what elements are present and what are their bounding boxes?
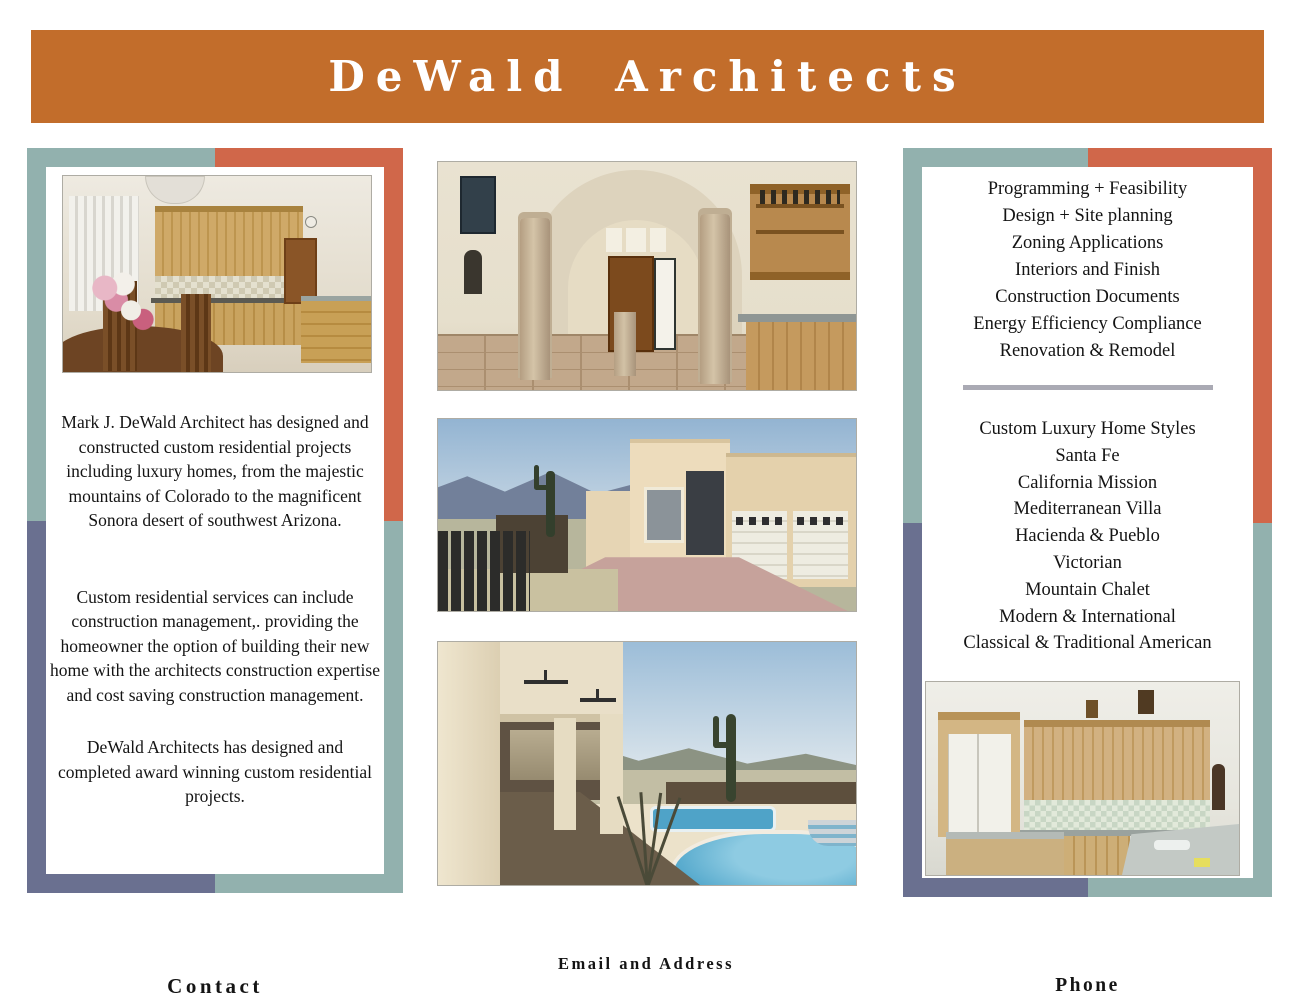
garage-door (793, 511, 848, 579)
style-item: Hacienda & Pueblo (922, 523, 1253, 550)
dining-chair (181, 294, 211, 373)
style-item: Mediterranean Villa (922, 496, 1253, 523)
column (700, 214, 730, 384)
decor-lantern (1086, 700, 1098, 718)
service-item: Design + Site planning (922, 203, 1253, 230)
service-item: Interiors and Finish (922, 257, 1253, 284)
title-banner: DeWald Architects (31, 30, 1264, 123)
frame-top-left (27, 148, 215, 167)
pool-steps (808, 820, 856, 846)
left-panel: Mark J. DeWald Architect has designed an… (27, 148, 403, 893)
flower-arrangement (115, 296, 155, 332)
style-item: Custom Luxury Home Styles (922, 416, 1253, 443)
wall-art (460, 176, 496, 234)
frame-left-bottom (27, 521, 46, 894)
service-item: Construction Documents (922, 284, 1253, 311)
corner-pillar (438, 642, 500, 885)
patio-column (600, 714, 623, 834)
photo-kitchen-oak (925, 681, 1240, 876)
pendant-lamp (145, 176, 205, 204)
email-heading: Email and Address (437, 951, 855, 976)
service-item: Zoning Applications (922, 230, 1253, 257)
frame-right-top (1253, 148, 1272, 523)
bottles (760, 190, 840, 204)
contact-heading: Contact (27, 972, 403, 1000)
frame-right-top (384, 148, 403, 521)
column (520, 218, 550, 380)
photo-foyer-arch (437, 161, 857, 391)
services-paragraph: Custom residential services can include … (49, 585, 381, 708)
frame-left-bottom (903, 523, 922, 898)
door-sidelight (654, 258, 676, 350)
phone-block: Phone 928-726-0686 (903, 916, 1272, 1000)
frame-right-bottom (1253, 523, 1272, 898)
entry-glass (686, 471, 724, 555)
divider-line (963, 385, 1213, 390)
sculpture (1212, 764, 1225, 810)
frame-top-right (215, 148, 403, 167)
home-styles-list: Custom Luxury Home Styles Santa Fe Calif… (922, 416, 1253, 657)
email-address-block: Email and Address DeWaldArchitects@roadr… (437, 901, 855, 1000)
upper-cabinets (1024, 720, 1210, 807)
service-item: Programming + Feasibility (922, 176, 1253, 203)
awards-paragraph: DeWald Architects has designed and compl… (49, 735, 381, 809)
services-list: Programming + Feasibility Design + Site … (922, 176, 1253, 365)
phone-heading: Phone (903, 972, 1272, 1000)
style-item: Santa Fe (922, 443, 1253, 470)
frame-bottom-right (1088, 878, 1273, 897)
ceiling-fan (580, 698, 616, 702)
about-paragraph: Mark J. DeWald Architect has designed an… (49, 410, 381, 533)
style-item: Classical & Traditional American (922, 630, 1253, 657)
frame-top-right (1088, 148, 1273, 167)
contact-block: Contact Mark J. DeWald Architect (27, 916, 403, 1000)
window (644, 487, 684, 543)
wine-rack-shelf (756, 204, 844, 208)
brochure-page: DeWald Architects Mark J (0, 0, 1294, 1000)
bar-base-cabinet (746, 322, 856, 390)
style-item: Victorian (922, 550, 1253, 577)
frame-top-left (903, 148, 1088, 167)
photo-desert-house (437, 418, 857, 612)
transom-windows (606, 228, 666, 252)
yellow-notepad (1194, 858, 1210, 867)
kitchen-island (946, 832, 1064, 875)
frame-bottom-left (27, 874, 215, 893)
wall-clock (305, 216, 317, 228)
style-item: Mountain Chalet (922, 577, 1253, 604)
refrigerator (948, 734, 1011, 834)
frame-left-top (903, 148, 922, 523)
service-item: Renovation & Remodel (922, 338, 1253, 365)
bar-counter (738, 314, 856, 322)
pantry-door (284, 238, 317, 304)
right-panel: Programming + Feasibility Design + Site … (903, 148, 1272, 897)
service-item: Energy Efficiency Compliance (922, 311, 1253, 338)
patio-column (554, 718, 576, 830)
backsplash (155, 276, 303, 298)
saguaro-cactus (546, 471, 555, 537)
statue (464, 250, 482, 294)
frame-right-bottom (384, 521, 403, 894)
photo-pool-patio (437, 641, 857, 886)
style-item: Modern & International (922, 604, 1253, 631)
ceiling-fan (524, 680, 568, 684)
style-item: California Mission (922, 470, 1253, 497)
frame-bottom-right (215, 874, 403, 893)
frame-bottom-left (903, 878, 1088, 897)
iron-fence (438, 531, 530, 611)
photo-kitchen-dining (62, 175, 372, 373)
decor-lantern (1138, 690, 1154, 714)
company-title: DeWald Architects (328, 52, 966, 101)
about-text: Mark J. DeWald Architect has designed an… (49, 410, 381, 809)
backsplash (1024, 800, 1210, 832)
column (614, 312, 636, 376)
frame-left-top (27, 148, 46, 521)
sink (1154, 840, 1190, 850)
saguaro-cactus (726, 714, 736, 802)
kitchen-island (301, 296, 371, 363)
